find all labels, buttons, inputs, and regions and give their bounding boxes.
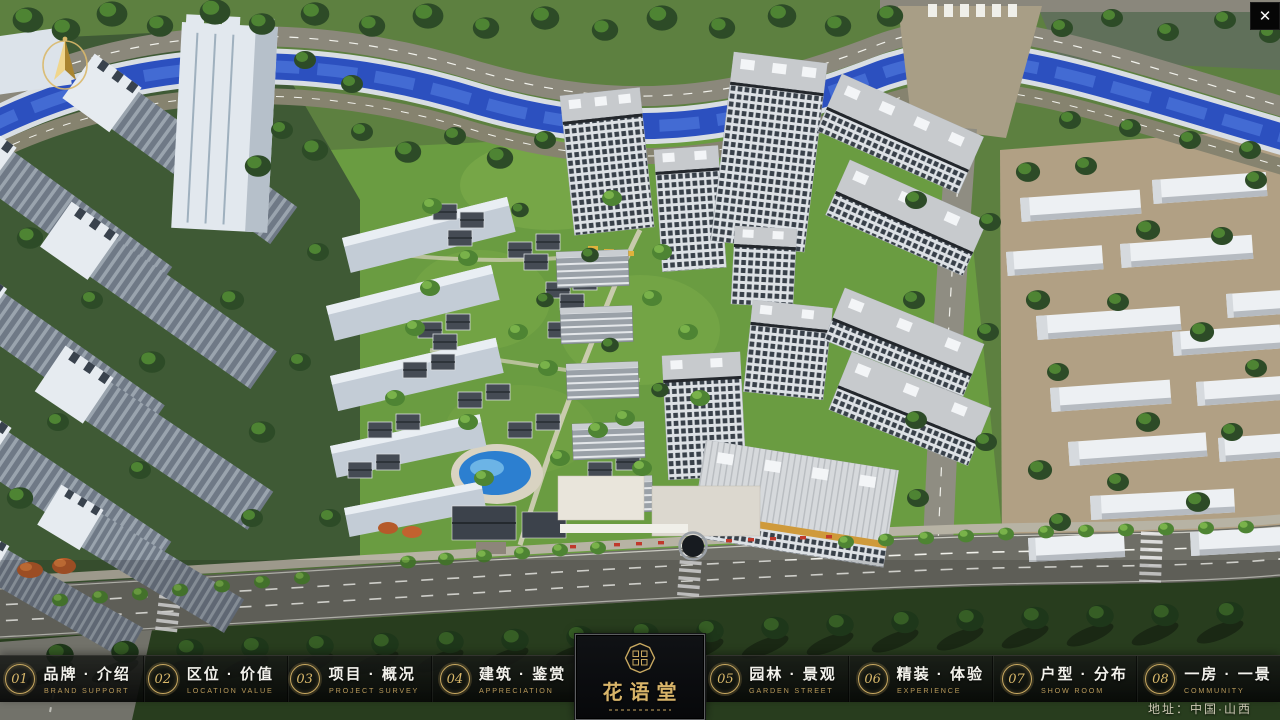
nav-label-en: BRAND SUPPORT	[44, 686, 129, 694]
nav-label-en: PROJECT SURVEY	[329, 686, 419, 694]
entrance-roundabout	[682, 535, 704, 557]
close-button[interactable]: ✕	[1250, 2, 1280, 30]
nav-label-zh: 建筑 · 鉴赏	[479, 663, 566, 684]
nav-label-en: GARDEN STREET	[749, 686, 834, 694]
nav-number-badge: 05	[710, 664, 740, 694]
nav-item-project[interactable]: 03 项目 · 概况 PROJECT SURVEY	[287, 656, 431, 702]
nav-item-brand[interactable]: 01 品牌 · 介绍 BRAND SUPPORT	[0, 656, 143, 702]
bottom-navigation-bar: 01 品牌 · 介绍 BRAND SUPPORT 02 区位 · 价值 LOCA…	[0, 655, 1280, 702]
nav-number-badge: 06	[858, 664, 888, 694]
nav-number-badge: 03	[290, 664, 320, 694]
nav-number-badge: 01	[5, 664, 35, 694]
nav-label-zh: 精装 · 体验	[897, 663, 984, 684]
project-name: 花语堂	[596, 676, 684, 705]
nav-label-en: APPRECIATION	[479, 686, 554, 694]
nav-item-floorplans[interactable]: 07 户型 · 分布 SHOW ROOM	[992, 656, 1136, 702]
aerial-masterplan-render[interactable]	[0, 0, 1280, 720]
nav-label-zh: 园林 · 景观	[749, 663, 836, 684]
nav-item-garden[interactable]: 05 园林 · 景观 GARDEN STREET	[705, 656, 849, 702]
nav-item-architecture[interactable]: 04 建筑 · 鉴赏 APPRECIATION	[431, 656, 575, 702]
nav-label-en: LOCATION VALUE	[187, 686, 274, 694]
nav-item-interior[interactable]: 06 精装 · 体验 EXPERIENCE	[848, 656, 992, 702]
project-logo-plaque[interactable]: 花语堂	[575, 634, 705, 720]
nav-number-badge: 08	[1145, 664, 1175, 694]
nav-number-badge: 02	[148, 664, 178, 694]
nav-number-badge: 04	[440, 664, 470, 694]
nav-label-zh: 一房 · 一景	[1184, 663, 1271, 684]
logo-seal-icon	[624, 642, 656, 674]
plaque-subtext-glyphs	[609, 709, 671, 711]
project-address: 地址：中国·山西	[1148, 700, 1252, 717]
compass-icon	[38, 34, 92, 94]
close-icon: ✕	[1259, 9, 1272, 24]
nav-label-zh: 项目 · 概况	[329, 663, 416, 684]
nav-item-room-views[interactable]: 08 一房 · 一景 COMMUNITY	[1136, 656, 1280, 702]
nav-label-zh: 户型 · 分布	[1041, 663, 1128, 684]
presentation-screen: ✕ 01 品牌 · 介绍 BRAND SUPPORT 02 区位 · 价值 LO…	[0, 0, 1280, 720]
nav-label-en: SHOW ROOM	[1041, 686, 1104, 694]
nav-label-en: COMMUNITY	[1184, 686, 1245, 694]
nav-label-zh: 区位 · 价值	[187, 663, 274, 684]
nav-number-badge: 07	[1002, 664, 1032, 694]
nav-label-zh: 品牌 · 介绍	[44, 663, 131, 684]
nav-label-en: EXPERIENCE	[897, 686, 961, 694]
nav-item-location[interactable]: 02 区位 · 价值 LOCATION VALUE	[143, 656, 287, 702]
